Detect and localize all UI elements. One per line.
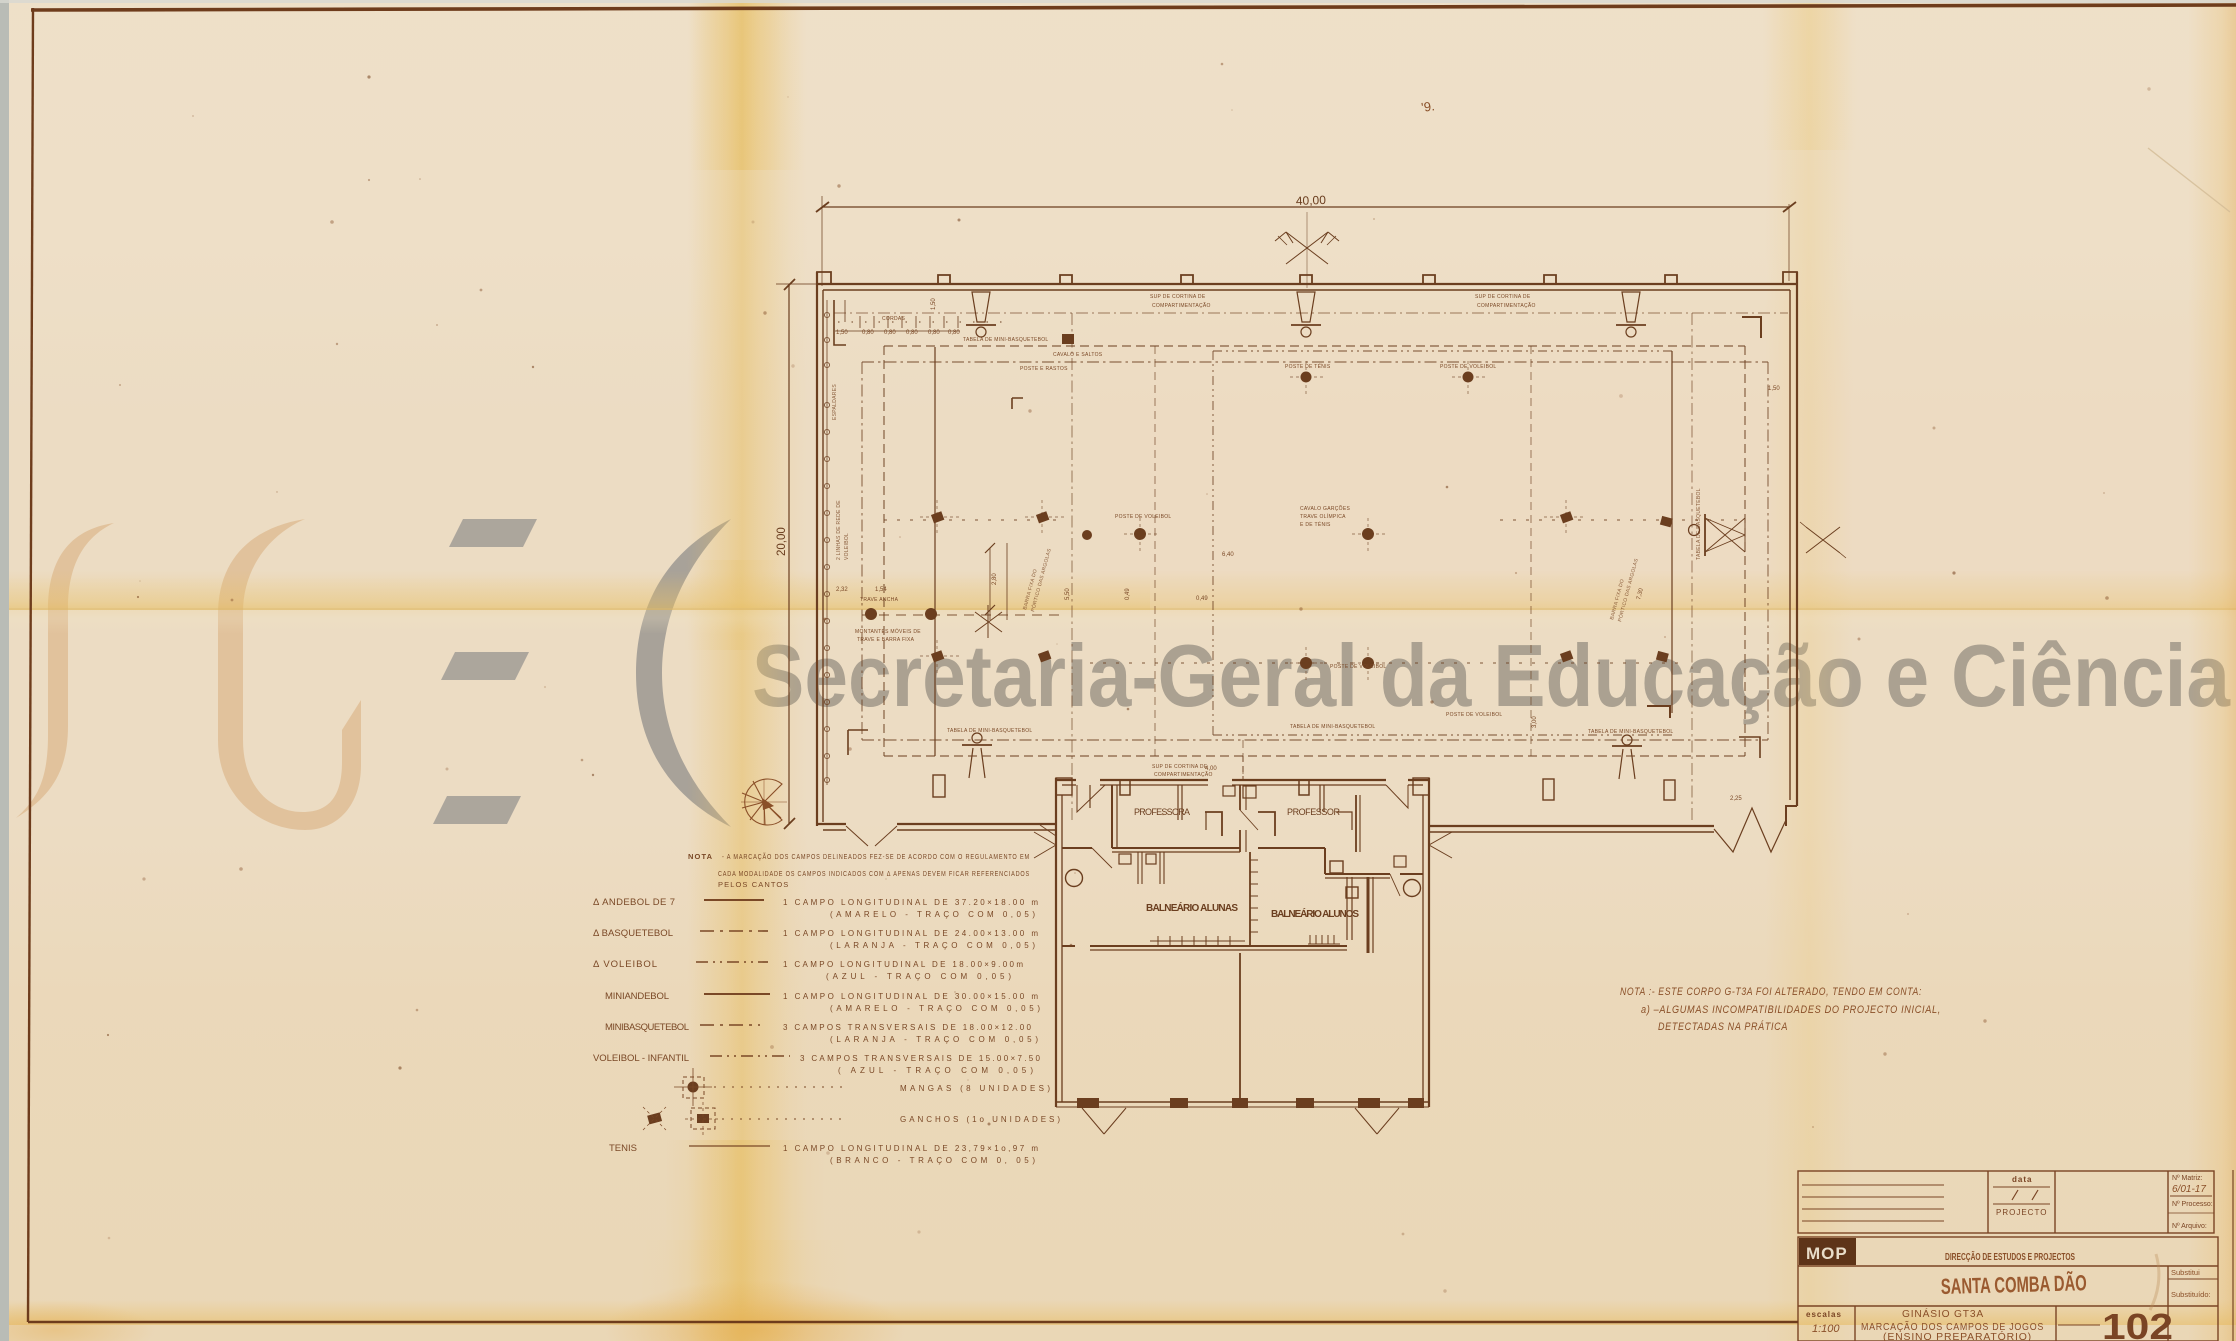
svg-text:102: 102	[2102, 1306, 2173, 1341]
svg-text:ESPALDARES: ESPALDARES	[832, 384, 838, 420]
svg-text:PELOS CANTOS: PELOS CANTOS	[718, 880, 789, 889]
svg-text:3 CAMPOS TRANSVERSAIS DE 1: 3 CAMPOS TRANSVERSAIS DE 18.00×12.00	[783, 1023, 1032, 1032]
svg-text:Δ ANDEBOL DE 7: Δ ANDEBOL DE 7	[593, 897, 675, 908]
svg-text:GINÁSIO GT3A: GINÁSIO GT3A	[1902, 1307, 1984, 1320]
svg-text:Nº Arquivo:: Nº Arquivo:	[2172, 1223, 2207, 1230]
svg-text:3 CAMPOS TRANSVERSAIS DE 1: 3 CAMPOS TRANSVERSAIS DE 15.00×7.50	[800, 1054, 1041, 1063]
svg-text:SANTA COMBA DÃO: SANTA COMBA DÃO	[1940, 1270, 2087, 1299]
svg-text:POSTE DE TÉNIS: POSTE DE TÉNIS	[1285, 363, 1331, 370]
svg-text:2,32: 2,32	[836, 587, 848, 593]
svg-text:1,50: 1,50	[931, 298, 937, 310]
svg-text:40,00: 40,00	[1296, 193, 1327, 208]
svg-text:BALNEÁRIO ALUNAS: BALNEÁRIO ALUNAS	[1146, 901, 1238, 914]
svg-text:(ENSINO PREPARATÓRIO): (ENSINO PREPARATÓRIO)	[1883, 1330, 2032, 1341]
svg-text:VOLEIBOL: VOLEIBOL	[844, 533, 850, 560]
svg-text:COMPARTIMENTAÇÃO: COMPARTIMENTAÇÃO	[1152, 302, 1211, 309]
svg-text:6/01-17: 6/01-17	[2172, 1184, 2206, 1195]
svg-text:'9.: '9.	[1420, 98, 1435, 115]
svg-text:0,49: 0,49	[1196, 596, 1208, 602]
svg-text:POSTE DE VOLEIBOL: POSTE DE VOLEIBOL	[1115, 514, 1172, 520]
svg-text:TABELA DE MINI-BASQUETEBOL: TABELA DE MINI-BASQUETEBOL	[947, 728, 1033, 734]
svg-text:0,80: 0,80	[906, 330, 918, 336]
svg-text:MONTANTES MÓVEIS DE: MONTANTES MÓVEIS DE	[855, 628, 921, 635]
svg-text:CADA MODALIDADE OS CAMPOS INDI: CADA MODALIDADE OS CAMPOS INDICADOS COM …	[718, 869, 1030, 878]
svg-text:DIRECÇÃO DE ESTUDOS E PROJECTO: DIRECÇÃO DE ESTUDOS E PROJECTOS	[1945, 1250, 2075, 1263]
svg-text:Δ VOLEIBOL: Δ VOLEIBOL	[593, 959, 657, 970]
svg-text:POSTE E RASTOS: POSTE E RASTOS	[1020, 366, 1068, 372]
svg-text:0,80: 0,80	[928, 330, 940, 336]
svg-text:1,54: 1,54	[875, 587, 887, 593]
svg-text:0,80: 0,80	[884, 330, 896, 336]
svg-text:Substituído:: Substituído:	[2171, 1290, 2211, 1299]
svg-text:TABELA DE MINI-BASQUETEBOL: TABELA DE MINI-BASQUETEBOL	[1290, 724, 1376, 730]
svg-text:2,25: 2,25	[1730, 796, 1742, 802]
svg-text:1,50: 1,50	[836, 330, 848, 336]
svg-text:MINIBASQUETEBOL: MINIBASQUETEBOL	[605, 1022, 689, 1033]
svg-text:2,80: 2,80	[992, 573, 998, 585]
svg-text:COMPARTIMENTAÇÃO: COMPARTIMENTAÇÃO	[1154, 771, 1213, 778]
svg-text:1,50: 1,50	[1768, 386, 1780, 392]
svg-text:0,49: 0,49	[1125, 588, 1131, 600]
svg-text:20,00: 20,00	[776, 527, 788, 556]
svg-text:POSTE DE VOLEIBOL: POSTE DE VOLEIBOL	[1440, 364, 1497, 370]
svg-text:escalas: escalas	[1806, 1310, 1842, 1319]
svg-text:SUP DE CORTINA DE: SUP DE CORTINA DE	[1150, 294, 1206, 300]
svg-text:CAVALO GARÇÕES: CAVALO GARÇÕES	[1300, 505, 1351, 512]
svg-text:PROFESSORA: PROFESSORA	[1134, 807, 1190, 817]
svg-text:0,80: 0,80	[948, 330, 960, 336]
svg-text:TRAVE ANCHA: TRAVE ANCHA	[860, 597, 899, 603]
svg-text:Δ BASQUETEBOL: Δ BASQUETEBOL	[593, 928, 673, 939]
svg-text:PROFESSOR: PROFESSOR	[1287, 807, 1341, 817]
svg-text:CORDAS: CORDAS	[882, 316, 906, 322]
svg-text:TABELA DE BASQUETEBOL: TABELA DE BASQUETEBOL	[1696, 488, 1702, 560]
svg-text:TENIS: TENIS	[609, 1143, 637, 1154]
svg-text:Substitui: Substitui	[2171, 1268, 2200, 1277]
svg-text:BALNEÁRIO ALUNOS: BALNEÁRIO ALUNOS	[1271, 907, 1359, 920]
svg-text:TABELA DE MINI-BASQUETEBOL: TABELA DE MINI-BASQUETEBOL	[1588, 729, 1674, 735]
svg-text:COMPARTIMENTAÇÃO: COMPARTIMENTAÇÃO	[1477, 302, 1536, 309]
svg-text:SUP DE CORTINA DE: SUP DE CORTINA DE	[1475, 294, 1531, 300]
svg-text:Nº Processo:: Nº Processo:	[2172, 1201, 2213, 1208]
svg-text:POSTE DE VOLEIBOL: POSTE DE VOLEIBOL	[1330, 664, 1387, 670]
svg-text:2 LINHAS DE REDE DE: 2 LINHAS DE REDE DE	[836, 500, 842, 560]
svg-text:Nº Matriz:: Nº Matriz:	[2172, 1175, 2203, 1182]
svg-text:NOTA: NOTA	[688, 852, 713, 861]
svg-text:TABELA DE MINI-BASQUETEBOL: TABELA DE MINI-BASQUETEBOL	[963, 337, 1049, 343]
svg-text:3,00: 3,00	[1532, 716, 1538, 728]
svg-text:DETECTADAS NA PRÁTICA: DETECTADAS NA PRÁTICA	[1658, 1020, 1788, 1033]
svg-text:VOLEIBOL - INFANTIL: VOLEIBOL - INFANTIL	[593, 1053, 689, 1064]
svg-text:0,80: 0,80	[862, 330, 874, 336]
svg-text:MOP: MOP	[1806, 1244, 1848, 1263]
svg-text:MINIANDEBOL: MINIANDEBOL	[605, 991, 669, 1002]
svg-text:CAVALO E SALTOS: CAVALO E SALTOS	[1053, 352, 1103, 358]
svg-text:1:100: 1:100	[1812, 1323, 1840, 1335]
svg-text:TRAVE OLÍMPICA: TRAVE OLÍMPICA	[1300, 513, 1346, 520]
svg-text:TRAVE E BARRA FIXA: TRAVE E BARRA FIXA	[857, 637, 915, 643]
svg-text:POSTE DE VOLEIBOL: POSTE DE VOLEIBOL	[1446, 712, 1503, 718]
svg-text:SUP DE CORTINA DE: SUP DE CORTINA DE	[1152, 764, 1208, 770]
svg-text:Secretaria-Geral da Educação e: Secretaria-Geral da Educação e Ciência	[752, 626, 2231, 725]
svg-text:5,50: 5,50	[1065, 588, 1071, 600]
svg-text:6,40: 6,40	[1222, 552, 1234, 558]
svg-text:E DE TÉNIS: E DE TÉNIS	[1300, 521, 1331, 528]
svg-text:- A MARCAÇÃO DOS CAMPOS DELINE: - A MARCAÇÃO DOS CAMPOS DELINEADOS FEZ-S…	[722, 852, 1030, 861]
svg-text:data: data	[2012, 1175, 2032, 1184]
svg-text:a) –ALGUMAS INCOMPATIBILIDADE: a) –ALGUMAS INCOMPATIBILIDADES DO PROJEC…	[1641, 1004, 1941, 1016]
svg-text:PROJECTO: PROJECTO	[1996, 1208, 2047, 1217]
svg-text:NOTA :- ESTE CORPO G-T3A FO: NOTA :- ESTE CORPO G-T3A FOI ALTERADO, T…	[1620, 986, 1922, 998]
